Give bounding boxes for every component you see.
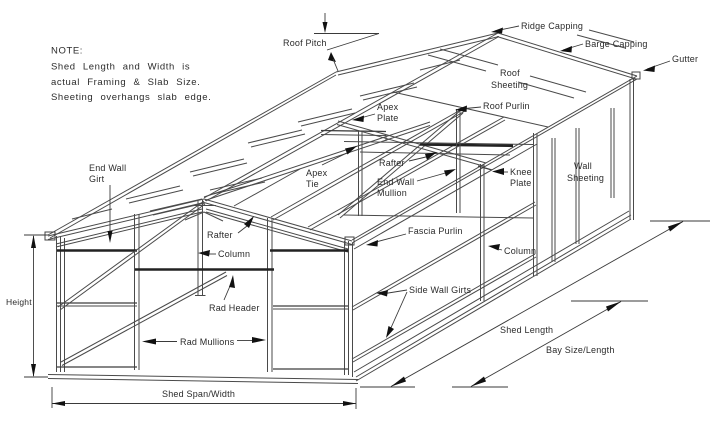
svg-text:Gutter: Gutter — [672, 54, 698, 64]
svg-text:Plate: Plate — [510, 178, 532, 188]
svg-text:Mullion: Mullion — [377, 188, 407, 198]
svg-text:Height: Height — [6, 297, 32, 307]
svg-text:Plate: Plate — [377, 113, 399, 123]
svg-text:Rafter: Rafter — [207, 230, 233, 240]
svg-text:Barge Capping: Barge Capping — [585, 39, 648, 49]
svg-text:Rad Header: Rad Header — [209, 303, 260, 313]
svg-text:Sheeting: Sheeting — [567, 173, 604, 183]
svg-text:Knee: Knee — [510, 167, 532, 177]
svg-text:Column: Column — [218, 249, 250, 259]
svg-text:Roof: Roof — [500, 68, 520, 78]
svg-text:End Wall: End Wall — [89, 163, 126, 173]
svg-text:Bay Size/Length: Bay Size/Length — [546, 345, 615, 355]
svg-text:Roof Pitch: Roof Pitch — [283, 38, 327, 48]
svg-text:Tie: Tie — [306, 179, 319, 189]
svg-text:NOTE:: NOTE: — [51, 46, 83, 57]
svg-text:Column: Column — [504, 246, 536, 256]
svg-text:Girt: Girt — [89, 174, 105, 184]
svg-text:Ridge Capping: Ridge Capping — [521, 21, 583, 31]
svg-text:Shed Length and Width is: Shed Length and Width is — [51, 62, 190, 73]
svg-text:Rad Mullions: Rad Mullions — [180, 337, 235, 347]
svg-text:Shed Span/Width: Shed Span/Width — [162, 389, 235, 399]
svg-text:Sheeting overhangs slab edge.: Sheeting overhangs slab edge. — [51, 92, 211, 103]
svg-text:Fascia Purlin: Fascia Purlin — [408, 226, 463, 236]
svg-text:Sheeting: Sheeting — [491, 80, 528, 90]
svg-text:Apex: Apex — [306, 168, 328, 178]
svg-text:End Wall: End Wall — [377, 177, 414, 187]
svg-text:Wall: Wall — [574, 161, 592, 171]
svg-text:Rafter: Rafter — [379, 158, 405, 168]
svg-text:Shed Length: Shed Length — [500, 325, 553, 335]
svg-text:Roof Purlin: Roof Purlin — [483, 101, 530, 111]
svg-text:Side Wall Girts: Side Wall Girts — [409, 285, 471, 295]
svg-text:Apex: Apex — [377, 102, 399, 112]
svg-text:actual Framing & Slab Size.: actual Framing & Slab Size. — [51, 77, 200, 88]
